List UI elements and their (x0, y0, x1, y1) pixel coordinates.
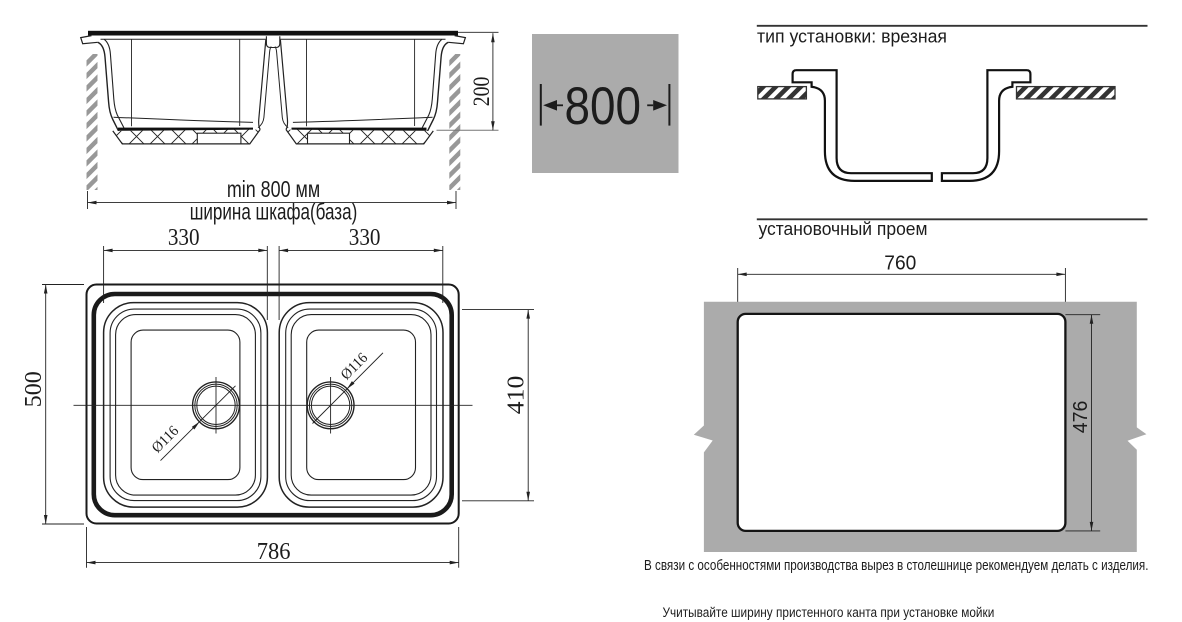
svg-text:установочный проем: установочный проем (759, 219, 928, 239)
svg-text:500: 500 (21, 371, 47, 407)
svg-text:Учитывайте ширину пристенного: Учитывайте ширину пристенного канта при … (663, 605, 995, 620)
svg-text:786: 786 (257, 539, 291, 565)
svg-text:тип установки: врезная: тип установки: врезная (757, 27, 947, 47)
svg-text:476: 476 (1069, 401, 1092, 434)
svg-text:Ø116: Ø116 (149, 423, 183, 457)
svg-text:330: 330 (168, 225, 200, 251)
svg-text:760: 760 (884, 251, 916, 274)
svg-text:200: 200 (469, 77, 494, 107)
svg-text:800: 800 (565, 77, 642, 136)
svg-text:В связи с особенностями произв: В связи с особенностями производства выр… (644, 558, 1149, 574)
svg-text:ширина шкафа(база): ширина шкафа(база) (190, 199, 358, 225)
svg-text:410: 410 (504, 376, 530, 415)
svg-text:Ø116: Ø116 (338, 350, 372, 384)
svg-text:330: 330 (349, 225, 381, 251)
